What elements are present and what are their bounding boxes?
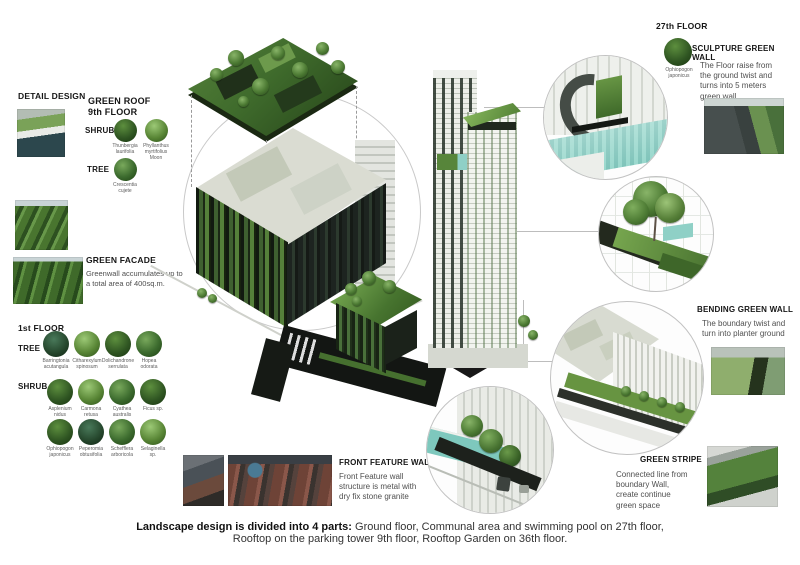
green-facade-description: Greenwall accumulates up to a total area… — [86, 269, 186, 288]
street-tree — [208, 294, 217, 303]
sculpture-wall-description: The Floor raise from the ground twist an… — [700, 61, 784, 102]
plant-name-label: Crescentia cujete — [111, 182, 139, 194]
rooftop-tree — [210, 68, 223, 81]
detail-design-title: DETAIL DESIGN — [18, 91, 85, 101]
plant-item: Ficus sp. — [139, 379, 167, 418]
plant-name-label: Phyllanthus myrtifolius Moon — [142, 143, 170, 161]
green-roof-subtitle: 9th FLOOR — [88, 107, 137, 117]
front-feature-wall-description: Front Feature wall structure is metal wi… — [339, 472, 419, 503]
green-roof-shrub-row: Thunbergia laurifolia Phyllanthus myrtif… — [111, 119, 170, 161]
green-facade-title: GREEN FACADE — [86, 255, 156, 265]
plant-name-label: Citharexylum spinosum — [72, 358, 101, 370]
rooftop-tree — [238, 96, 249, 107]
first-floor-tree-label: TREE — [18, 344, 40, 353]
plant-photo-swatch — [140, 379, 166, 405]
plant-item: Hopea odorata — [135, 331, 163, 370]
green-facade-photo-2 — [13, 257, 83, 304]
plant-photo-swatch — [47, 419, 73, 445]
bending-wall-callout — [598, 176, 714, 292]
plant-item: Thunbergia laurifolia — [111, 119, 139, 161]
rooftop-tree — [292, 62, 308, 78]
plant-photo-swatch — [74, 331, 100, 357]
landscape-design-board: DETAIL DESIGN GREEN FACADE Greenwall acc… — [0, 0, 800, 565]
tower-back-roof — [433, 70, 477, 78]
plant-name-label: Selaginella sp. — [139, 446, 167, 458]
plant-photo-swatch — [140, 419, 166, 445]
green-roof-tree-row: Crescentia cujete — [111, 158, 139, 194]
flower-pot — [496, 476, 511, 492]
green-roof-title: GREEN ROOF — [88, 96, 151, 106]
plant-item: Citharexylum spinosum — [73, 331, 101, 370]
caption-line-2: Rooftop on the parking tower 9th floor, … — [0, 533, 800, 545]
tower-front — [467, 112, 517, 348]
caption-line-1: Landscape design is divided into 4 parts… — [0, 521, 800, 533]
rooftop-tree — [228, 50, 244, 66]
plant-photo-swatch — [47, 379, 73, 405]
rooftop-tree — [362, 271, 376, 285]
plant-name-label: Barringtonia acutangula — [42, 358, 70, 370]
rooftop-tree — [345, 283, 357, 295]
green-stripe-callout — [550, 301, 704, 455]
base-tree — [518, 315, 530, 327]
tree-trunk — [653, 217, 657, 241]
sculpture-wall-title: SCULPTURE GREEN WALL — [692, 44, 800, 62]
plant-item: Ophiopogon japonicus — [46, 419, 74, 458]
plant-photo-swatch — [114, 119, 137, 142]
plant-item: Carmona retusa — [77, 379, 105, 418]
planter-shrub — [479, 429, 503, 453]
first-floor-shrub-label: SHRUB — [18, 382, 47, 391]
plant-item: Phyllanthus myrtifolius Moon — [142, 119, 170, 161]
projection-line — [191, 95, 192, 187]
pool-patch — [663, 223, 693, 241]
rooftop-tree — [352, 296, 362, 306]
plant-photo-swatch — [109, 379, 135, 405]
sculpture-wall-callout — [543, 55, 668, 180]
deck-courtyard — [563, 319, 603, 351]
deck-courtyard — [290, 163, 352, 215]
street-tree — [197, 288, 207, 298]
plant-name-label: Peperomia obtusifolia — [77, 446, 105, 458]
rooftop-tree — [383, 280, 396, 293]
plant-photo-swatch — [136, 331, 162, 357]
rooftop-tree — [252, 78, 269, 95]
plant-name-label: Schefflera arboricola — [108, 446, 136, 458]
planter-shrub — [461, 415, 483, 437]
caption-line1-rest: Ground floor, Communal area and swimming… — [352, 521, 664, 533]
rooftop-tree — [331, 60, 345, 74]
bending-wall-title: BENDING GREEN WALL — [697, 305, 793, 314]
caption: Landscape design is divided into 4 parts… — [0, 521, 800, 545]
plant-item: Selaginella sp. — [139, 419, 167, 458]
plant-name-label: Dolichandrone serrulata — [102, 358, 134, 370]
plant-item: Peperomia obtusifolia — [77, 419, 105, 458]
flower-pot — [519, 485, 529, 493]
plant-item: Barringtonia acutangula — [42, 331, 70, 370]
plant-photo-swatch — [114, 158, 137, 181]
stripe-tree — [675, 402, 685, 412]
bending-wall-photo — [711, 347, 785, 395]
plant-name-label: Hopea odorata — [135, 358, 163, 370]
stripe-tree — [657, 397, 667, 407]
first-floor-tree-row: Barringtonia acutangula Citharexylum spi… — [42, 331, 163, 370]
green-stripe-title: GREEN STRIPE — [640, 455, 702, 464]
base-tree — [528, 330, 538, 340]
plant-item: Asplenium nidus — [46, 379, 74, 418]
plant-photo-swatch — [109, 419, 135, 445]
plant-name-label: Carmona retusa — [77, 406, 105, 418]
bending-wall-description: The boundary twist and turn into planter… — [702, 319, 786, 339]
plant-name-label: Ficus sp. — [143, 406, 163, 412]
green-stripe-description: Connected line from boundary Wall, creat… — [616, 470, 692, 511]
plant-item: Cyathea australis — [108, 379, 136, 418]
plant-item: Dolichandrone serrulata — [104, 331, 132, 370]
planter-tree-foliage — [655, 193, 685, 223]
plant-name-label: Thunbergia laurifolia — [111, 143, 139, 155]
front-feature-wall-title: FRONT FEATURE WALL — [339, 458, 434, 467]
feature-wall-photo-2 — [228, 455, 332, 506]
stripe-tree — [621, 386, 631, 396]
dark-paving-band — [251, 338, 295, 402]
stripe-tree — [639, 391, 649, 401]
green-roof-tree-label: TREE — [87, 165, 109, 174]
plant-name-label: Ophiopogon japonicus — [46, 446, 74, 458]
sculpture-wall-photo — [704, 98, 784, 154]
planter-tree-foliage — [623, 199, 649, 225]
plant-name-label: Cyathea australis — [108, 406, 136, 418]
front-planter-callout — [426, 386, 554, 514]
first-floor-shrub-row-2: Ophiopogon japonicus Peperomia obtusifol… — [46, 419, 167, 458]
green-roof-photo — [17, 109, 65, 157]
plant-name-label: Asplenium nidus — [46, 406, 74, 418]
green-facade-photo-1 — [15, 200, 68, 250]
plant-photo-swatch — [105, 331, 131, 357]
floor27-title: 27th FLOOR — [656, 21, 708, 31]
first-floor-shrub-row-1: Asplenium nidus Carmona retusa Cyathea a… — [46, 379, 167, 418]
plant-photo-swatch — [145, 119, 168, 142]
plant-photo-swatch — [78, 379, 104, 405]
tower-sky-terrace — [437, 154, 471, 170]
caption-lead: Landscape design is divided into 4 parts… — [136, 521, 352, 533]
feature-wall-photo-1 — [183, 455, 224, 506]
plant-photo-swatch — [78, 419, 104, 445]
plant-item: Schefflera arboricola — [108, 419, 136, 458]
plant-item: Crescentia cujete — [111, 158, 139, 194]
plant-photo-swatch — [43, 331, 69, 357]
rooftop-tree — [271, 46, 285, 60]
plant-photo-swatch — [664, 38, 692, 66]
rooftop-tree — [316, 42, 329, 55]
green-stripe-photo — [707, 446, 778, 507]
